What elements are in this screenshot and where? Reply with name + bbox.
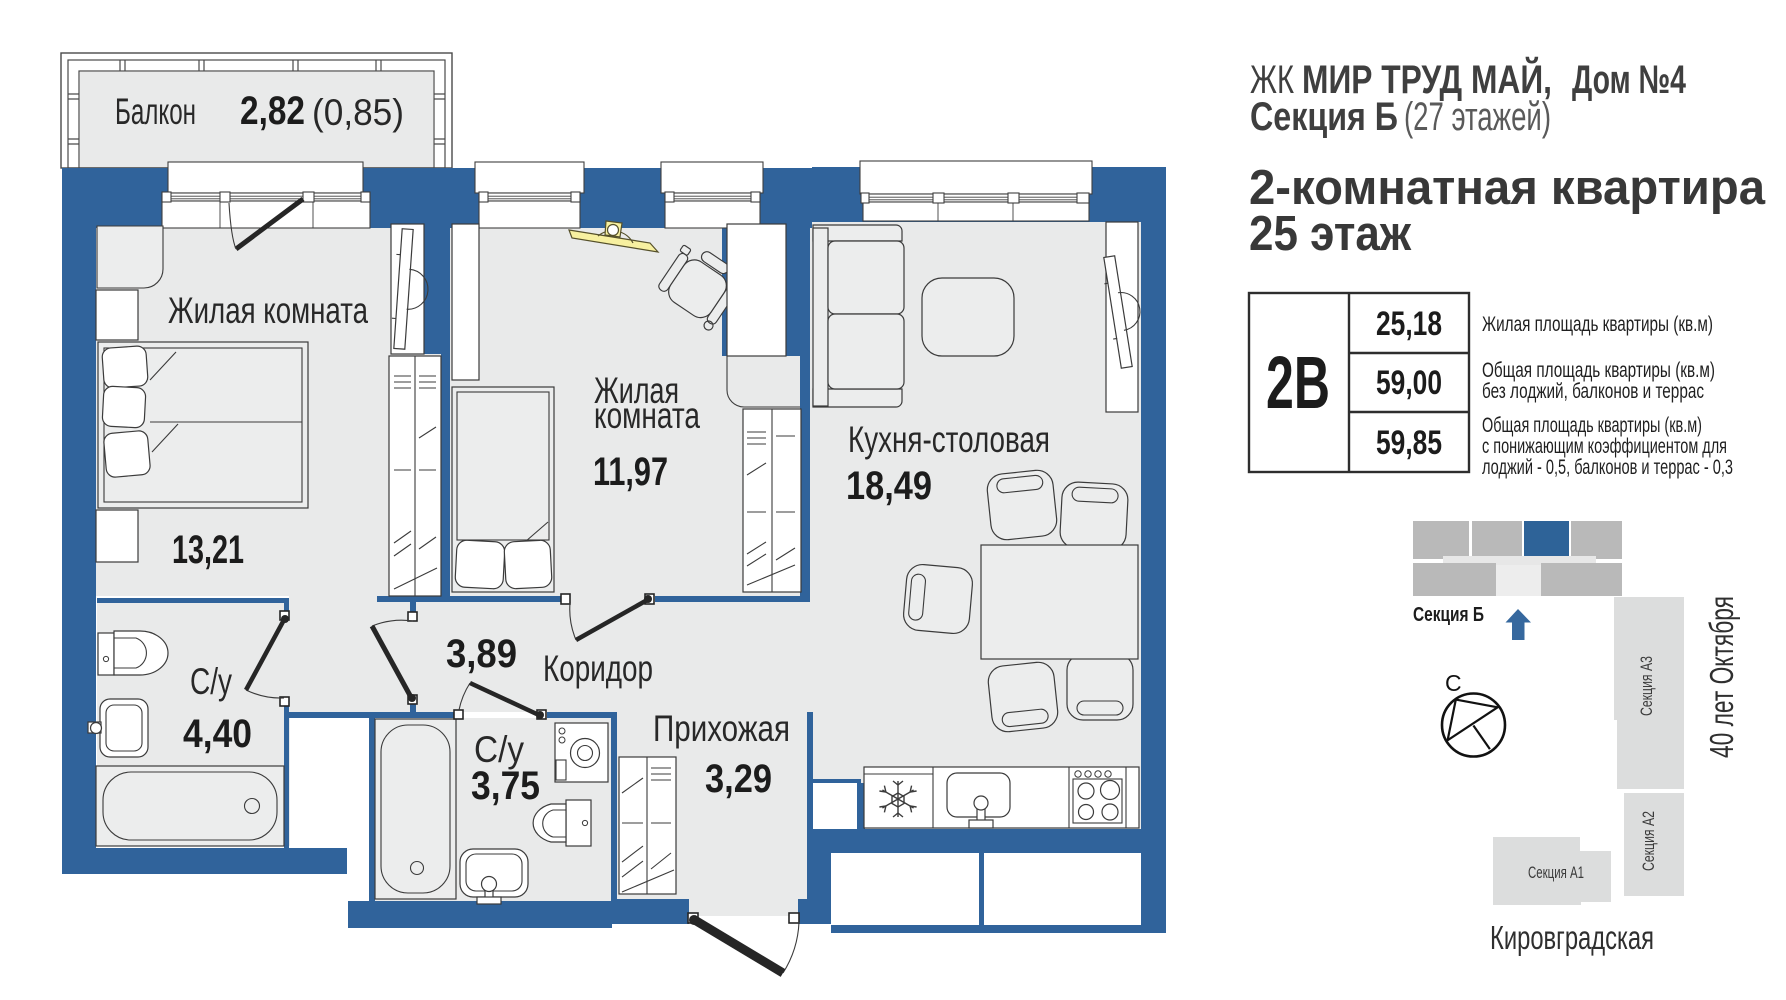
svg-text:С/у: С/у	[190, 661, 232, 702]
svg-text:Секция А3: Секция А3	[1637, 656, 1656, 716]
svg-text:3,29: 3,29	[705, 757, 772, 801]
svg-text:Балкон: Балкон	[115, 91, 196, 132]
svg-text:с понижающим коэффициентом для: с понижающим коэффициентом для	[1482, 435, 1727, 458]
svg-text:без лоджий, балконов и террас: без лоджий, балконов и террас	[1482, 380, 1704, 403]
svg-text:Прихожая: Прихожая	[653, 708, 790, 749]
svg-text:3,89: 3,89	[446, 632, 517, 676]
svg-text:25 этаж: 25 этаж	[1249, 207, 1412, 261]
svg-text:Общая площадь квартиры (кв.м): Общая площадь квартиры (кв.м)	[1482, 359, 1715, 382]
svg-text:лоджий - 0,5, балконов и терра: лоджий - 0,5, балконов и террас - 0,3	[1482, 456, 1733, 479]
svg-text:(0,85): (0,85)	[312, 92, 404, 133]
svg-text:18,49: 18,49	[846, 464, 932, 508]
svg-text:2В: 2В	[1266, 341, 1330, 424]
svg-text:4,40: 4,40	[183, 712, 252, 756]
svg-text:Общая площадь квартиры (кв.м): Общая площадь квартиры (кв.м)	[1482, 414, 1702, 437]
svg-text:Секция Б: Секция Б	[1250, 95, 1398, 139]
svg-text:Кировградская: Кировградская	[1490, 919, 1654, 956]
svg-text:3,75: 3,75	[471, 764, 540, 808]
svg-text:Жилая комната: Жилая комната	[168, 290, 368, 331]
svg-text:40 лет Октября: 40 лет Октября	[1703, 596, 1740, 758]
svg-text:комната: комната	[594, 395, 700, 436]
svg-text:Дом №4: Дом №4	[1572, 58, 1687, 102]
svg-text:11,97: 11,97	[593, 450, 668, 494]
svg-text:Секция А1: Секция А1	[1528, 863, 1584, 882]
svg-text:Секция Б: Секция Б	[1413, 604, 1484, 626]
svg-text:25,18: 25,18	[1376, 305, 1442, 343]
svg-text:Кухня-столовая: Кухня-столовая	[848, 419, 1050, 460]
svg-text:Коридор: Коридор	[543, 648, 653, 689]
svg-text:59,00: 59,00	[1376, 364, 1442, 402]
svg-text:Секция А2: Секция А2	[1639, 811, 1658, 871]
svg-text:С: С	[1445, 670, 1462, 696]
svg-text:(27 этажей): (27 этажей)	[1404, 95, 1551, 139]
svg-text:13,21: 13,21	[172, 528, 244, 572]
svg-text:2,82: 2,82	[240, 89, 305, 133]
svg-text:59,85: 59,85	[1376, 424, 1442, 462]
svg-text:Жилая площадь квартиры (кв.м): Жилая площадь квартиры (кв.м)	[1482, 313, 1713, 336]
